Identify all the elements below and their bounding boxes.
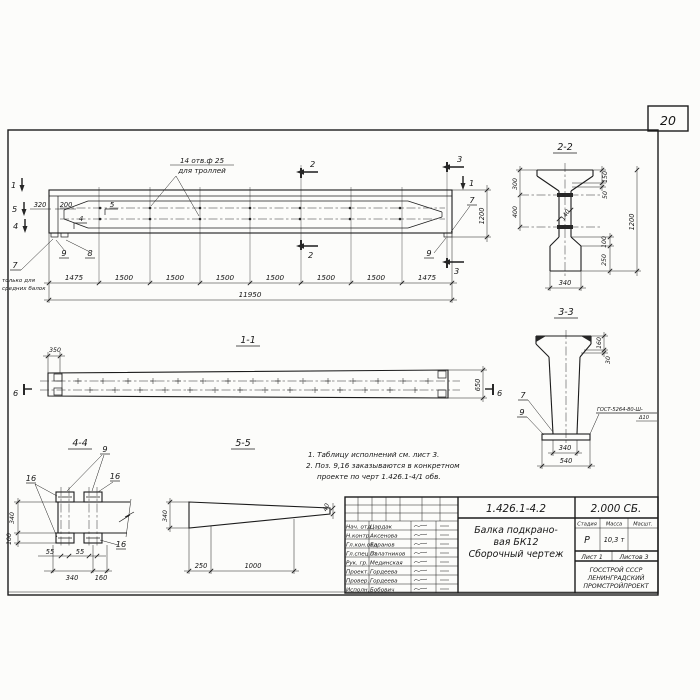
pos-4: 4 xyxy=(79,214,84,223)
hole-marks-row1 xyxy=(75,378,431,384)
row-name-5: Мединская xyxy=(370,561,403,567)
section-3-3-title: 3-3 xyxy=(558,307,573,318)
note-only-line1: только для xyxy=(2,278,36,284)
hole-marks-row2 xyxy=(87,387,418,393)
section-mark-5: 5 xyxy=(12,204,17,214)
pos-5: 5 xyxy=(110,200,115,209)
dim-540: 540 xyxy=(560,457,573,465)
dim-100-44: 100 xyxy=(6,533,13,545)
section-1-1-title: 1-1 xyxy=(240,335,255,346)
section-mark-4: 4 xyxy=(13,221,18,231)
row-name-2: Аксенова xyxy=(369,534,398,540)
dim-seg-1: 1475 xyxy=(65,273,84,282)
section-6-label-right: 6 xyxy=(497,388,502,398)
stage-header: Стадия xyxy=(577,522,597,528)
dim-250: 250 xyxy=(195,562,208,570)
holes-note-line1: 14 отв.ф 25 xyxy=(180,156,225,165)
section-3-label-bottom: 3 xyxy=(454,266,459,276)
dim-650: 650 xyxy=(474,379,482,392)
dim-340-44: 340 xyxy=(9,512,16,524)
row-role-7: Провер. xyxy=(346,579,369,585)
doc-code: 2.000 СБ. xyxy=(591,503,642,515)
dim-160: 160 xyxy=(596,337,603,349)
dim-200: 200 xyxy=(60,201,73,209)
row-name-8: Бобович xyxy=(370,588,395,594)
row-role-8: Исполн. xyxy=(346,588,370,594)
row-name-7: Гордеева xyxy=(370,579,398,585)
org-line-1: ГОССТРОЙ СССР xyxy=(590,565,643,574)
beam-outline xyxy=(49,190,452,237)
holes-note: 14 отв.ф 25 для троллей xyxy=(151,156,234,216)
doc-number: 1.426.1-4.2 xyxy=(486,503,546,515)
callout-7-33: 7 xyxy=(520,390,526,400)
dim-seg-7: 1500 xyxy=(367,273,386,282)
elevation-view: 14 отв.ф 25 для троллей 1 5 4 1 2 2 xyxy=(2,154,491,303)
dim-250: 250 xyxy=(601,254,608,266)
support-pad xyxy=(444,233,452,237)
dim-160-44: 160 xyxy=(95,574,108,582)
row-name-6: Гордеева xyxy=(370,570,398,576)
dim-340-33: 340 xyxy=(559,444,572,452)
sheet-number: Лист 1 xyxy=(580,554,603,561)
pos-9-right: 9 xyxy=(426,248,431,258)
pos-7-left: 7 xyxy=(12,260,18,270)
pos-7-right: 7 xyxy=(469,195,475,205)
taper-plate-outline xyxy=(189,502,330,528)
section-5-5-dims: 340 250 1000 40 xyxy=(162,498,335,574)
row-role-2: Н.контр. xyxy=(346,534,371,540)
section-mark-right-1: 1 xyxy=(461,176,475,190)
organization: ГОССТРОЙ СССР ЛЕНИНГРАДСКИЙ ПРОМСТРОЙПРО… xyxy=(583,565,649,590)
section-4-4: 4-4 9 16 16 xyxy=(6,438,134,582)
section-4-4-dims: 340 100 55 55 340 160 xyxy=(6,498,112,582)
section-3-3: 3-3 160 30 7 9 xyxy=(517,307,657,469)
dim-350: 350 xyxy=(49,347,61,354)
section-1-1: 1-1 350 650 6 xyxy=(13,335,502,402)
signature-marks xyxy=(414,525,449,590)
section-mark-1r: 1 xyxy=(469,178,474,188)
row-role-5: Рук. гр. xyxy=(346,561,368,567)
drawing-sheet: 20 xyxy=(0,0,700,700)
row-role-1: Нач. отд xyxy=(346,525,371,531)
sheets-total: Листов 3 xyxy=(618,554,648,561)
row-name-3: Баранов xyxy=(370,543,395,549)
drawing-canvas: 20 xyxy=(0,0,700,700)
row-role-6: Проект. xyxy=(346,570,369,576)
weld-note-line2: Δ10 xyxy=(638,415,649,421)
note-line-3: проекте по черт 1.426.1-4/1 обв. xyxy=(317,472,441,481)
dim-340-55: 340 xyxy=(162,510,169,522)
stage-value: Р xyxy=(584,535,590,546)
dim-seg-4: 1500 xyxy=(216,273,235,282)
section-3-label-top: 3 xyxy=(457,154,462,164)
note-line-1: 1. Таблицу исполнений см. лист 3. xyxy=(308,450,439,459)
callout-16-bottom: 16 xyxy=(116,539,126,549)
mass-value: 10,3 т xyxy=(604,536,625,544)
dim-30: 30 xyxy=(605,356,612,364)
pos-8: 8 xyxy=(87,248,92,258)
dim-140: 140 xyxy=(560,208,572,222)
dim-total: 11950 xyxy=(239,290,262,299)
dim-100: 100 xyxy=(601,236,608,248)
dim-seg-6: 1500 xyxy=(317,273,336,282)
row-name-1: Цардак xyxy=(370,525,393,531)
holes-note-line2: для троллей xyxy=(177,166,226,175)
row-name-4: Палатников xyxy=(370,552,405,558)
section-2-label-top: 2 xyxy=(310,159,315,169)
section-2-2-dims: 300 400 150 50 140 1200 100 xyxy=(512,166,641,291)
section-6-label-left: 6 xyxy=(13,388,18,398)
section-2-marks: 2 2 xyxy=(296,159,318,260)
org-line-2: ЛЕНИНГРАДСКИЙ xyxy=(587,573,645,582)
dim-1000: 1000 xyxy=(245,562,262,570)
signature-header-zone xyxy=(345,497,458,521)
weld-note-line1: ГОСТ-5264-80-Ш- xyxy=(597,407,643,413)
support-pad xyxy=(51,233,58,237)
dim-300: 300 xyxy=(512,178,519,190)
section-3-3-dims: 160 30 7 9 ГОСТ-5264-80-Ш- Δ10 340 540 xyxy=(517,332,657,469)
section-2-2: 2-2 300 400 xyxy=(512,142,641,291)
dim-55-b: 55 xyxy=(76,548,84,556)
dim-seg-3: 1500 xyxy=(166,273,185,282)
note-line-2: 2. Поз. 9,16 заказываются в конкретном xyxy=(306,461,460,470)
section-3-3-profile xyxy=(536,336,591,440)
dim-50: 50 xyxy=(602,191,609,199)
dim-seg-5: 1500 xyxy=(266,273,285,282)
callout-9-33: 9 xyxy=(519,407,524,417)
signature-rows-text: Нач. отд Цардак Н.контр. Аксенова Гл.кон… xyxy=(346,525,405,594)
dim-400: 400 xyxy=(512,206,519,218)
page-number: 20 xyxy=(660,113,676,128)
stage-mass-scale: Стадия Масса Масшт. Р 10,3 т Лист 1 Лист… xyxy=(575,518,658,561)
scale-header: Масшт. xyxy=(633,522,653,528)
section-marks-left: 1 5 4 xyxy=(11,178,28,233)
org-line-3: ПРОМСТРОЙПРОЕКТ xyxy=(583,581,649,590)
title-line-3: Сборочный чертеж xyxy=(469,549,564,560)
callout-16-left: 16 xyxy=(26,473,36,483)
callout-9-44: 9 xyxy=(102,444,107,454)
dim-seg-2: 1500 xyxy=(115,273,134,282)
section-2-label-bottom: 2 xyxy=(308,250,313,260)
elevation-gridlines xyxy=(99,162,447,284)
dim-340b-44: 340 xyxy=(66,574,79,582)
dim-340-22: 340 xyxy=(559,279,572,287)
section-4-4-title: 4-4 xyxy=(72,438,87,449)
title-line-1: Балка подкрано- xyxy=(474,525,558,536)
title-block: Нач. отд Цардак Н.контр. Аксенова Гл.кон… xyxy=(345,497,658,594)
support-pad xyxy=(61,233,68,237)
section-5-5-title: 5-5 xyxy=(235,438,250,449)
note-only-line2: средних балок xyxy=(2,286,46,292)
mass-header: Масса xyxy=(606,522,622,528)
section-2-2-title: 2-2 xyxy=(557,142,572,153)
dim-1200-elev: 1200 xyxy=(478,208,486,225)
drawing-title: Балка подкрано- вая БК12 Сборочный черте… xyxy=(469,525,564,560)
callout-16-top: 16 xyxy=(110,471,120,481)
section-mark-1: 1 xyxy=(11,180,16,190)
dim-seg-8: 1475 xyxy=(418,273,437,282)
plan-dims: 350 650 6 6 xyxy=(13,347,502,402)
notes: 1. Таблицу исполнений см. лист 3. 2. Поз… xyxy=(306,450,460,481)
title-line-2: вая БК12 xyxy=(494,537,539,548)
elevation-left-dims: 320 200 5 4 xyxy=(30,200,118,229)
dim-1200-sec: 1200 xyxy=(628,214,636,231)
elevation-bottom-dims: 1475 1500 1500 1500 1500 1500 1500 1475 … xyxy=(44,233,457,303)
plan-outline xyxy=(40,370,460,398)
dim-150: 150 xyxy=(602,171,609,183)
dim-320: 320 xyxy=(34,201,47,209)
section-3-marks: 3 3 xyxy=(442,154,464,276)
